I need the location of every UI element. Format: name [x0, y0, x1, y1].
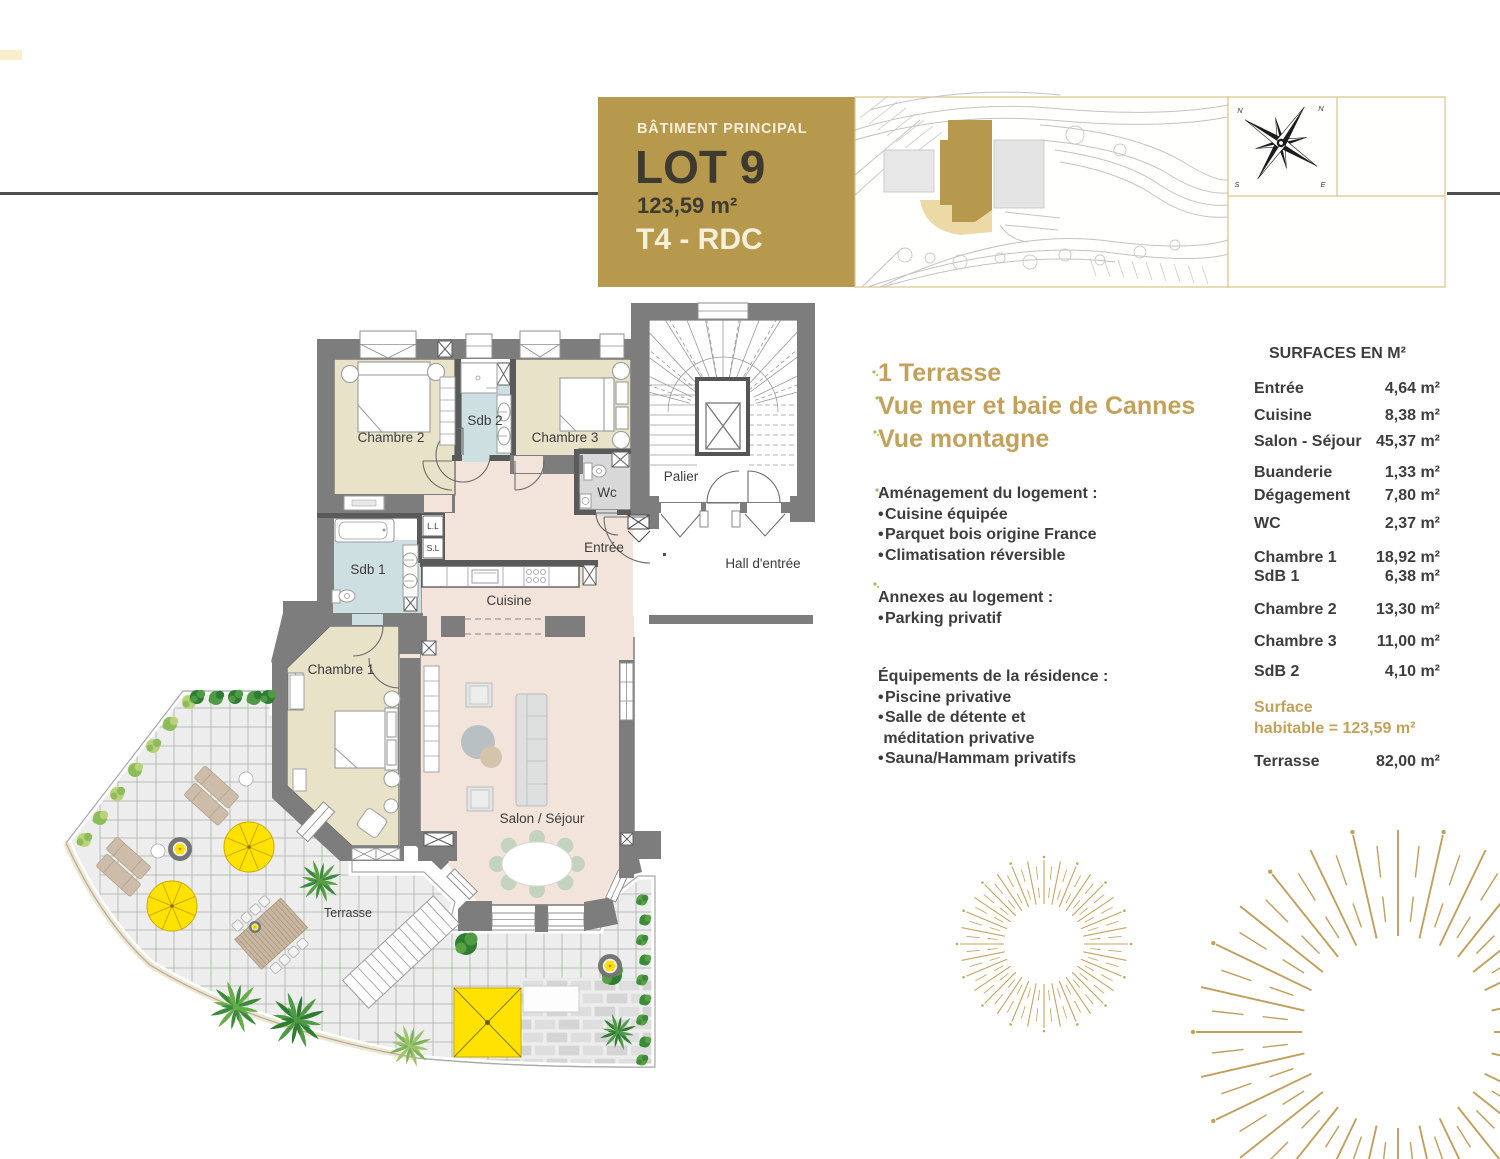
svg-text:Terrasse: Terrasse: [324, 906, 372, 920]
svg-text:Chambre 1: Chambre 1: [308, 662, 375, 677]
svg-text:Sdb 2: Sdb 2: [467, 413, 502, 428]
svg-text:Chambre 2: Chambre 2: [358, 430, 425, 445]
svg-text:Wc: Wc: [597, 485, 617, 500]
svg-text:L.L: L.L: [427, 521, 439, 531]
svg-text:Cuisine: Cuisine: [486, 593, 531, 608]
svg-text:S: S: [1234, 180, 1239, 189]
svg-text:S.L: S.L: [427, 543, 440, 553]
svg-text:N: N: [1237, 106, 1243, 115]
svg-text:Hall d'entrée: Hall d'entrée: [725, 556, 800, 571]
svg-text:Palier: Palier: [664, 469, 699, 484]
svg-text:N: N: [1318, 104, 1324, 113]
svg-text:Entrée: Entrée: [584, 540, 624, 555]
svg-text:Sdb 1: Sdb 1: [350, 562, 385, 577]
svg-text:Salon / Séjour: Salon / Séjour: [500, 811, 585, 826]
svg-text:Chambre 3: Chambre 3: [532, 430, 599, 445]
